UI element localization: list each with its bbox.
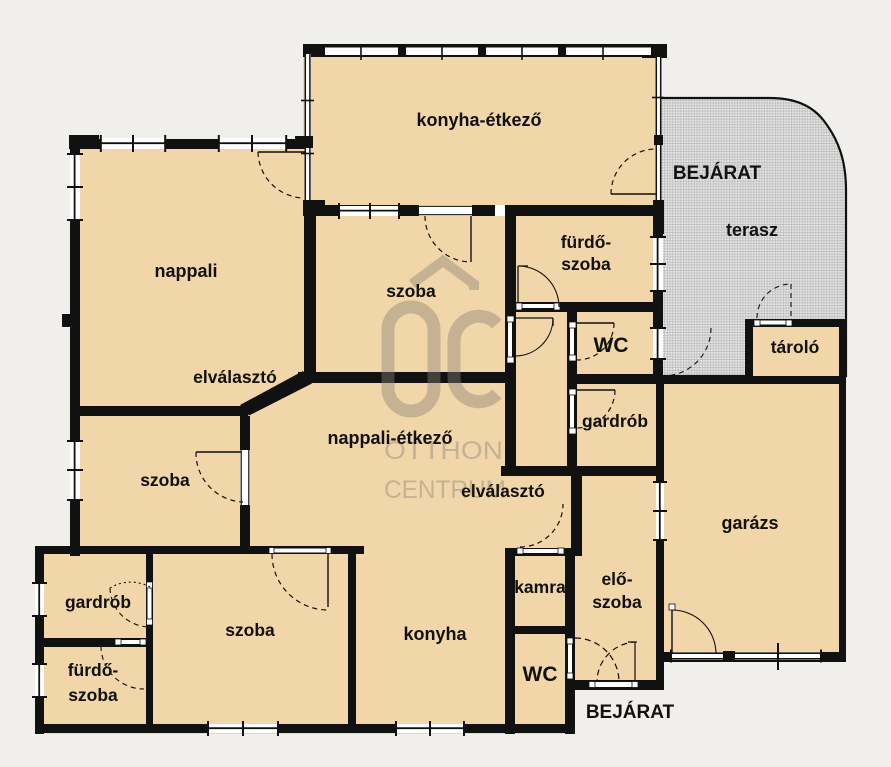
svg-text:szoba: szoba bbox=[386, 281, 436, 301]
svg-text:garázs: garázs bbox=[721, 513, 778, 533]
svg-text:BEJÁRAT: BEJÁRAT bbox=[586, 701, 675, 723]
svg-text:konyha: konyha bbox=[403, 624, 467, 644]
svg-text:szoba: szoba bbox=[225, 620, 275, 640]
svg-text:gardrób: gardrób bbox=[582, 411, 648, 431]
svg-text:tároló: tároló bbox=[771, 337, 820, 357]
svg-text:gardrób: gardrób bbox=[65, 592, 131, 612]
svg-text:elválasztó: elválasztó bbox=[193, 367, 277, 387]
svg-text:szoba: szoba bbox=[140, 470, 190, 490]
svg-text:szoba: szoba bbox=[592, 592, 642, 612]
svg-text:terasz: terasz bbox=[726, 220, 778, 240]
svg-text:kamra: kamra bbox=[514, 577, 566, 597]
svg-text:fürdő-: fürdő- bbox=[561, 232, 612, 252]
svg-text:konyha-étkező: konyha-étkező bbox=[416, 110, 541, 130]
svg-text:szoba: szoba bbox=[561, 254, 611, 274]
svg-text:nappali-étkező: nappali-étkező bbox=[327, 428, 452, 448]
svg-text:elő-: elő- bbox=[601, 569, 632, 589]
svg-text:BEJÁRAT: BEJÁRAT bbox=[673, 162, 762, 184]
svg-text:WC: WC bbox=[523, 663, 558, 686]
svg-text:WC: WC bbox=[594, 334, 629, 357]
svg-text:szoba: szoba bbox=[68, 685, 118, 705]
svg-text:fürdő-: fürdő- bbox=[68, 660, 119, 680]
svg-text:nappali: nappali bbox=[154, 261, 217, 281]
svg-text:elválasztó: elválasztó bbox=[461, 481, 545, 501]
